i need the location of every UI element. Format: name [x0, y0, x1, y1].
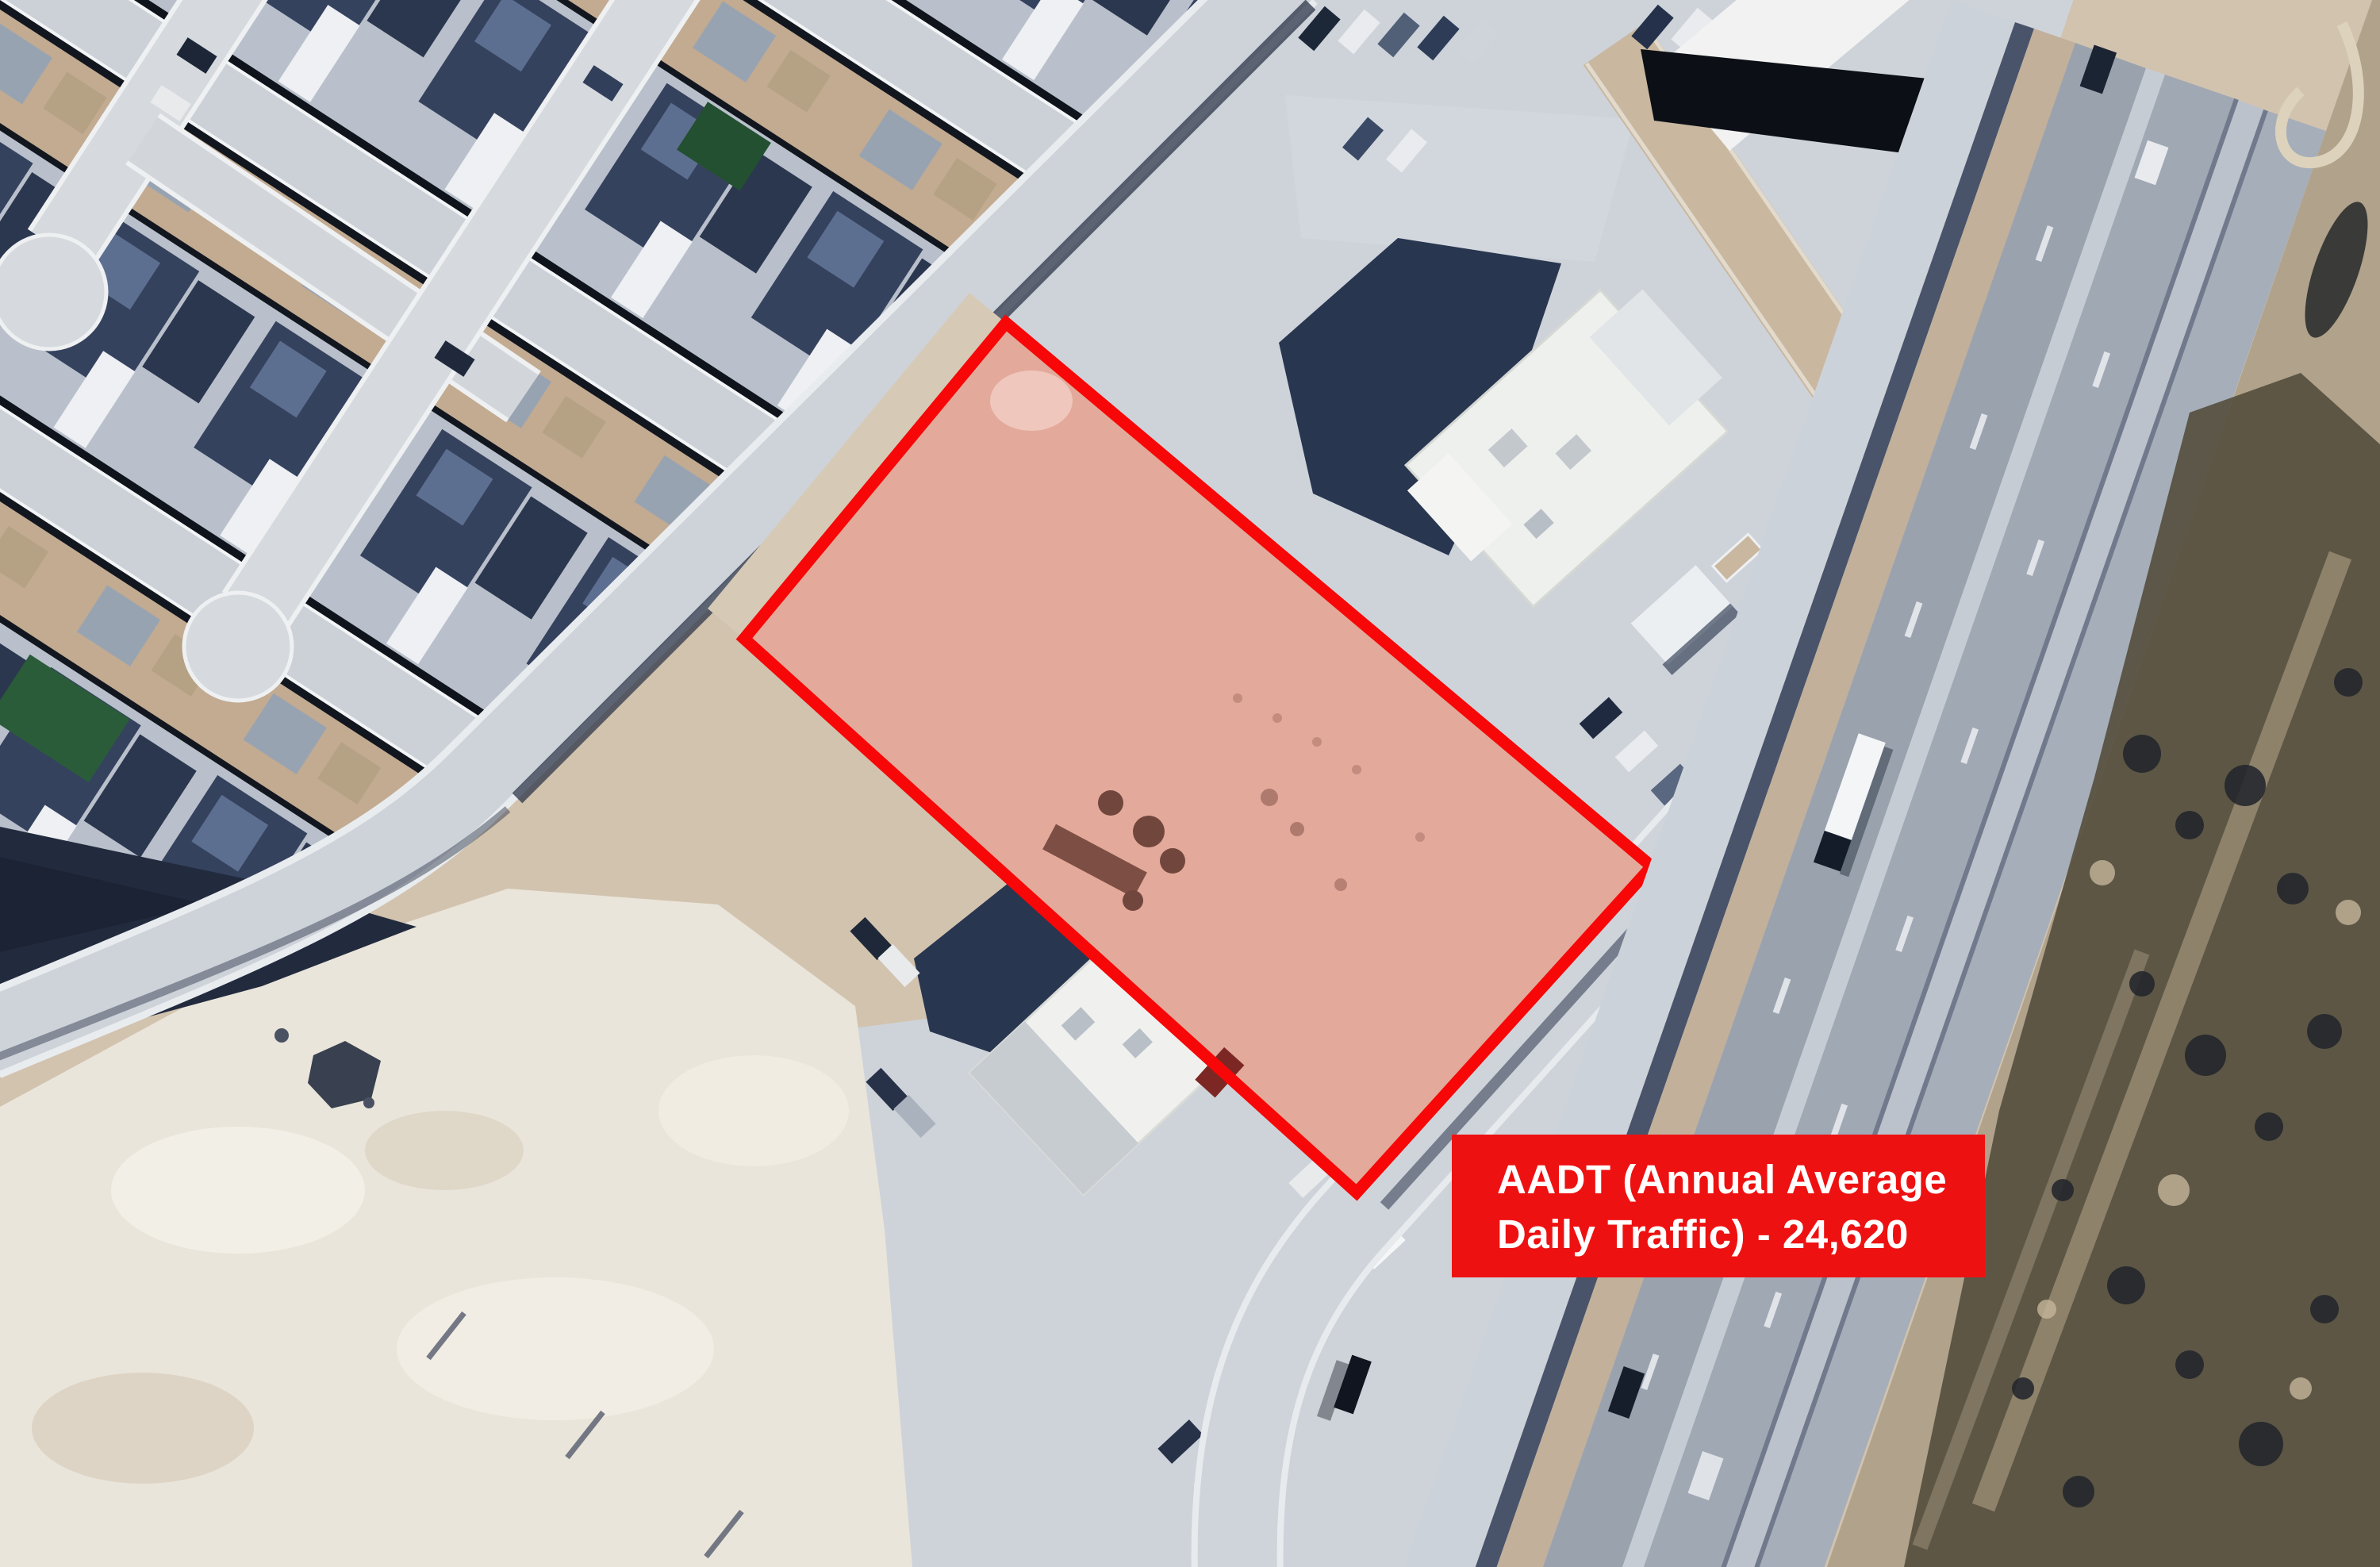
aadt-label-line1: AADT (Annual Average [1497, 1152, 1985, 1207]
aadt-label: AADT (Annual Average Daily Traffic) - 24… [1452, 1135, 1985, 1277]
satellite-imagery [0, 0, 2380, 1567]
aerial-map: AADT (Annual Average Daily Traffic) - 24… [0, 0, 2380, 1567]
aadt-label-line2: Daily Traffic) - 24,620 [1497, 1207, 1985, 1262]
